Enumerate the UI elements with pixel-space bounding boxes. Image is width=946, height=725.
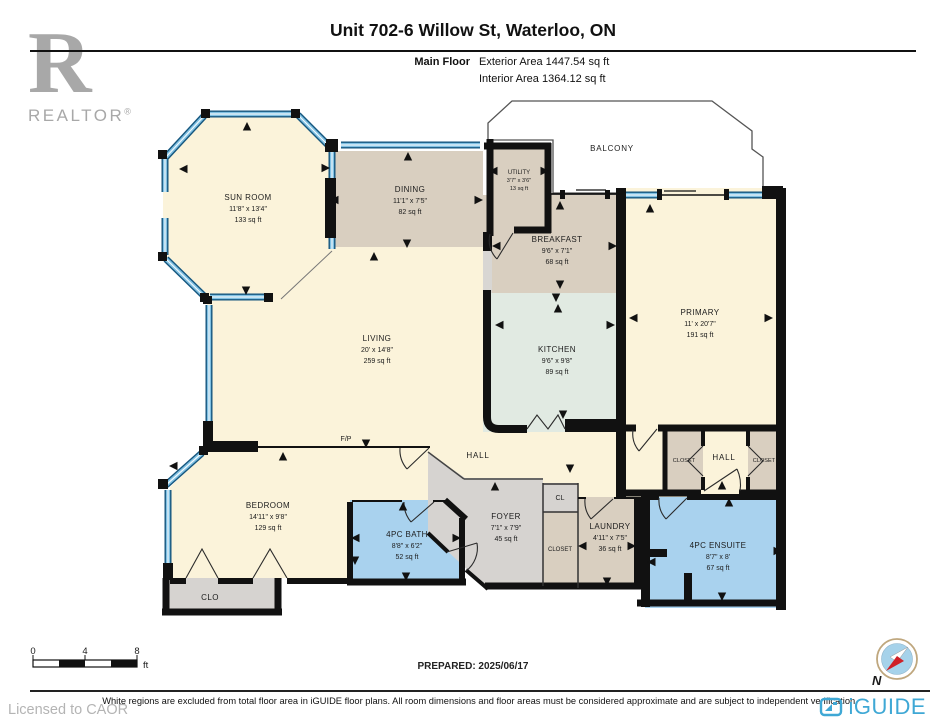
label-laundry: LAUNDRY — [590, 522, 631, 531]
label-balcony: BALCONY — [590, 144, 634, 153]
dimension-arrow-icon — [169, 462, 178, 470]
label-closet-hall-right: CLOSET — [753, 458, 776, 464]
svg-text:9'6" x 7'1": 9'6" x 7'1" — [542, 248, 573, 255]
svg-text:3'7" x 3'6": 3'7" x 3'6" — [507, 178, 531, 184]
licensed-text: Licensed to CAOR — [8, 702, 128, 718]
svg-text:67 sq ft: 67 sq ft — [707, 565, 730, 572]
svg-text:8'7" x 8': 8'7" x 8' — [706, 554, 730, 561]
svg-text:8'8" x 6'2": 8'8" x 6'2" — [392, 543, 423, 550]
iguide-logo: iGUIDE — [819, 694, 926, 720]
svg-text:11' x 20'7": 11' x 20'7" — [684, 321, 716, 328]
label-closet-foyer: CLOSET — [548, 547, 572, 553]
compass-north-label: N — [872, 673, 882, 688]
svg-text:7'1" x 7'9": 7'1" x 7'9" — [491, 525, 522, 532]
label-closet-hall-left: CLOSET — [673, 458, 696, 464]
compass-icon: N — [866, 632, 928, 690]
label-living: LIVING — [363, 334, 392, 343]
label-cl: CL — [556, 495, 565, 502]
svg-text:36 sq ft: 36 sq ft — [599, 546, 622, 553]
svg-text:45 sq ft: 45 sq ft — [495, 536, 518, 543]
prepared-date: PREPARED: 2025/06/17 — [0, 661, 946, 672]
label-fp: F/P — [341, 436, 352, 443]
footer-divider — [30, 690, 930, 692]
svg-text:9'6" x 9'8": 9'6" x 9'8" — [542, 358, 573, 365]
label-kitchen: KITCHEN — [538, 345, 576, 354]
label-hall-main: HALL — [466, 451, 489, 460]
label-utility: UTILITY — [508, 170, 530, 176]
svg-text:82 sq ft: 82 sq ft — [399, 209, 422, 216]
label-bath: 4PC BATH — [386, 530, 428, 539]
svg-text:52 sq ft: 52 sq ft — [396, 554, 419, 561]
label-breakfast: BREAKFAST — [532, 235, 583, 244]
iguide-camera-icon — [819, 697, 843, 717]
svg-text:4'11" x 7'5": 4'11" x 7'5" — [593, 535, 627, 542]
label-foyer: FOYER — [491, 512, 521, 521]
room-living — [207, 247, 483, 450]
label-primary: PRIMARY — [680, 308, 719, 317]
label-hall-bedwing: HALL — [712, 453, 735, 462]
label-ensuite: 4PC ENSUITE — [690, 541, 747, 550]
floorplan-page: R REALTOR® Unit 702-6 Willow St, Waterlo… — [0, 0, 946, 725]
floor-plan: SUN ROOM 11'8" x 13'4" 133 sq ft DINING … — [0, 0, 946, 725]
disclaimer-text: White regions are excluded from total fl… — [30, 696, 930, 706]
svg-text:259 sq ft: 259 sq ft — [364, 358, 391, 365]
svg-text:13 sq ft: 13 sq ft — [510, 186, 529, 192]
label-dining: DINING — [395, 185, 425, 194]
room-laundry — [578, 497, 638, 588]
svg-text:133 sq ft: 133 sq ft — [235, 217, 262, 224]
svg-text:14'11" x 9'8": 14'11" x 9'8" — [249, 514, 287, 521]
svg-text:11'1" x 7'5": 11'1" x 7'5" — [393, 198, 427, 205]
svg-text:68 sq ft: 68 sq ft — [546, 259, 569, 266]
label-sun-room: SUN ROOM — [224, 193, 271, 202]
svg-text:89 sq ft: 89 sq ft — [546, 369, 569, 376]
svg-text:20' x 14'8": 20' x 14'8" — [361, 347, 394, 354]
svg-text:11'8" x 13'4": 11'8" x 13'4" — [229, 206, 267, 213]
iguide-wordmark: iGUIDE — [848, 694, 926, 720]
svg-text:191 sq ft: 191 sq ft — [687, 332, 714, 339]
cased-opening — [483, 248, 492, 293]
label-clo: CLO — [201, 593, 219, 602]
label-bedroom: BEDROOM — [246, 501, 290, 510]
svg-text:129 sq ft: 129 sq ft — [255, 525, 282, 532]
